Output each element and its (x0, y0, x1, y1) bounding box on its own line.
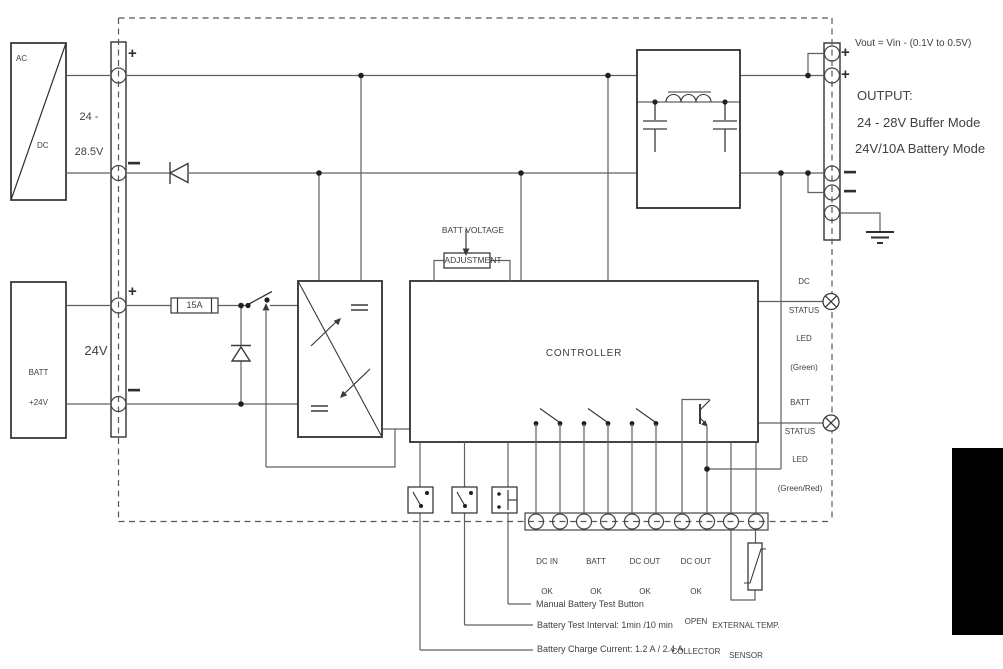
battery-label: BATT +24V (12, 348, 65, 418)
ac-label: AC (16, 54, 27, 63)
output-mode-battery: 24V/10A Battery Mode (855, 141, 985, 156)
controller-block (410, 281, 758, 442)
dc-label: DC (37, 141, 49, 150)
thermistor-icon (744, 543, 766, 590)
output-heading: OUTPUT: (857, 88, 913, 103)
ground-icon (866, 232, 894, 243)
power-supply-schematic: AC DC 24 - 28.5V + − BATT +24V 24V + − 1… (0, 0, 1003, 669)
schematic-linework (0, 0, 1003, 669)
batt-status-led-label: BATT STATUS LED (Green/Red) (772, 379, 828, 503)
ac-dc-converter-block (11, 43, 66, 200)
battery-switch (245, 292, 272, 311)
output-mode-buffer: 24 - 28V Buffer Mode (857, 115, 980, 130)
input-minus-sign: − (127, 152, 141, 176)
output-plus-sign-1: + (841, 45, 850, 60)
output-minus-sign-2: − (843, 180, 857, 204)
input-range-label: 24 - 28.5V (66, 89, 112, 170)
output-plus-sign-2: + (841, 67, 850, 82)
annotation-charge-current: Battery Charge Current: 1.2 A / 2.4 A (537, 644, 683, 655)
adjustment-label: BATT VOLTAGE ADJUSTMENT (423, 205, 523, 275)
charge-current-switch[interactable] (408, 487, 433, 513)
output-filter-block (637, 50, 740, 208)
controller-label: CONTROLLER (410, 348, 758, 360)
fuse-label: 15A (171, 300, 218, 311)
dc-status-led-label: DC STATUS LED (Green) (779, 258, 829, 382)
vout-note: Vout = Vin - (0.1V to 0.5V) (855, 38, 971, 50)
input-plus-sign: + (128, 46, 137, 61)
temp-sensor-label: EXTERNAL TEMP. SENSOR Traco S/N: TSP-TS (698, 601, 794, 669)
battery-voltage-label: 24V (79, 343, 113, 358)
battery-plus-sign: + (128, 284, 137, 299)
input-diode (170, 162, 188, 184)
battery-diode (231, 346, 251, 362)
annotation-manual-test: Manual Battery Test Button (536, 599, 644, 610)
dc-dc-converter-block (298, 281, 382, 437)
black-panel (952, 448, 1003, 635)
manual-test-button[interactable] (492, 487, 517, 513)
test-interval-switch[interactable] (452, 487, 477, 513)
battery-minus-sign: − (127, 379, 141, 403)
annotation-test-interval: Battery Test Interval: 1min /10 min (537, 620, 673, 631)
